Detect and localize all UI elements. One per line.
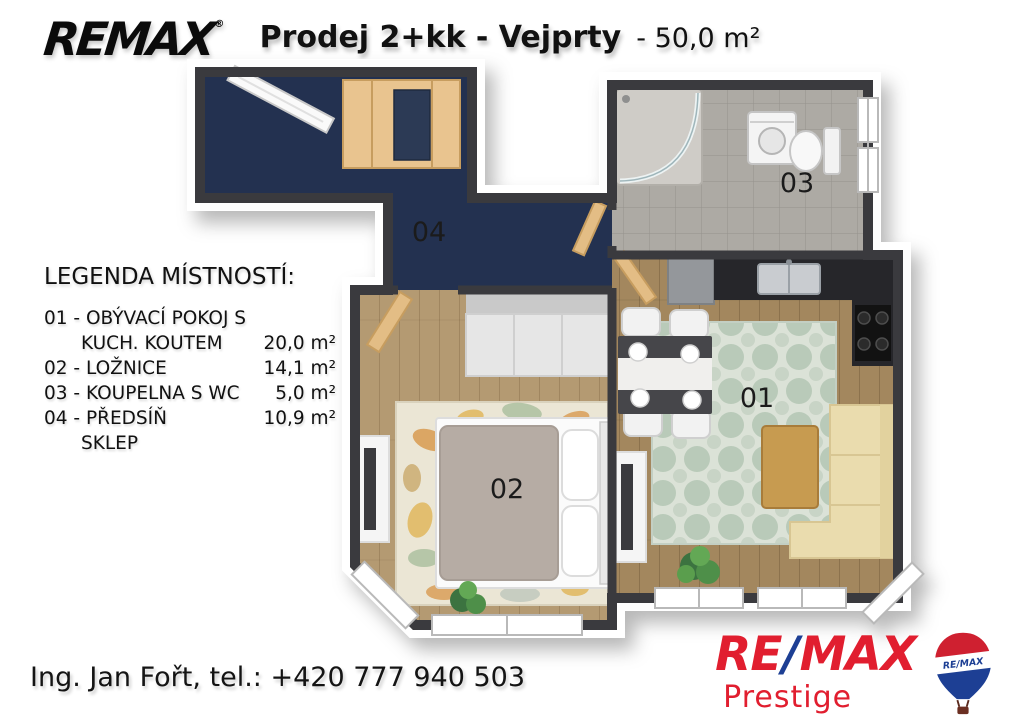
dining-chair — [622, 308, 660, 336]
remax-slash: / — [781, 627, 799, 682]
label-living-room: 01 — [740, 383, 774, 414]
shower — [616, 89, 702, 185]
tv-screen — [364, 448, 376, 530]
tv-screen — [621, 464, 633, 550]
washing-machine — [748, 112, 796, 164]
stove — [855, 305, 891, 361]
bedroom-window — [432, 615, 582, 635]
agency-logo: RE/MAX Prestige RE/MAX — [715, 630, 996, 716]
remax-balloon-icon: RE/MAX — [930, 630, 996, 716]
table-runner — [618, 358, 712, 390]
dining-chair — [672, 410, 710, 438]
agency-logo-text: RE/MAX Prestige — [715, 631, 916, 715]
agency-name: Prestige — [715, 680, 916, 715]
plate — [629, 343, 647, 361]
plate — [683, 391, 701, 409]
coffee-table — [762, 426, 818, 508]
agent-contact: Ing. Jan Fořt, tel.: +420 777 940 503 — [30, 662, 525, 693]
label-bathroom: 03 — [780, 168, 814, 199]
tv-cabinet-bedroom — [359, 436, 389, 542]
dining-chair — [670, 310, 708, 338]
label-hallway: 04 — [412, 217, 446, 248]
fridge — [668, 258, 714, 304]
wardrobe — [343, 80, 460, 168]
pillow — [562, 430, 598, 500]
agency-brand: RE/MAX — [715, 631, 916, 678]
kitchen-sink — [758, 259, 820, 294]
daybed-sofa — [466, 292, 610, 376]
plate — [631, 389, 649, 407]
pillow — [562, 506, 598, 576]
balloon-basket — [957, 707, 968, 714]
plate — [681, 345, 699, 363]
tv-cabinet-living — [616, 452, 646, 562]
label-bedroom: 02 — [490, 474, 524, 505]
floor-plan: 01 02 03 04 — [0, 0, 1024, 715]
